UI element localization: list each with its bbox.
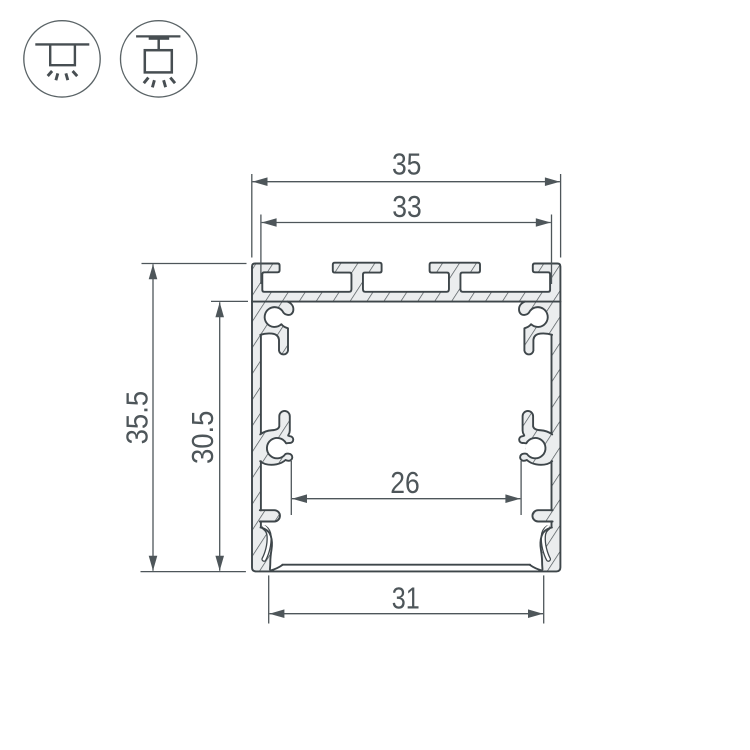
- svg-text:35: 35: [392, 148, 422, 182]
- svg-text:35.5: 35.5: [120, 391, 154, 445]
- svg-text:33: 33: [392, 190, 422, 224]
- svg-text:31: 31: [392, 582, 420, 616]
- svg-text:30.5: 30.5: [186, 411, 220, 465]
- svg-text:26: 26: [390, 466, 420, 500]
